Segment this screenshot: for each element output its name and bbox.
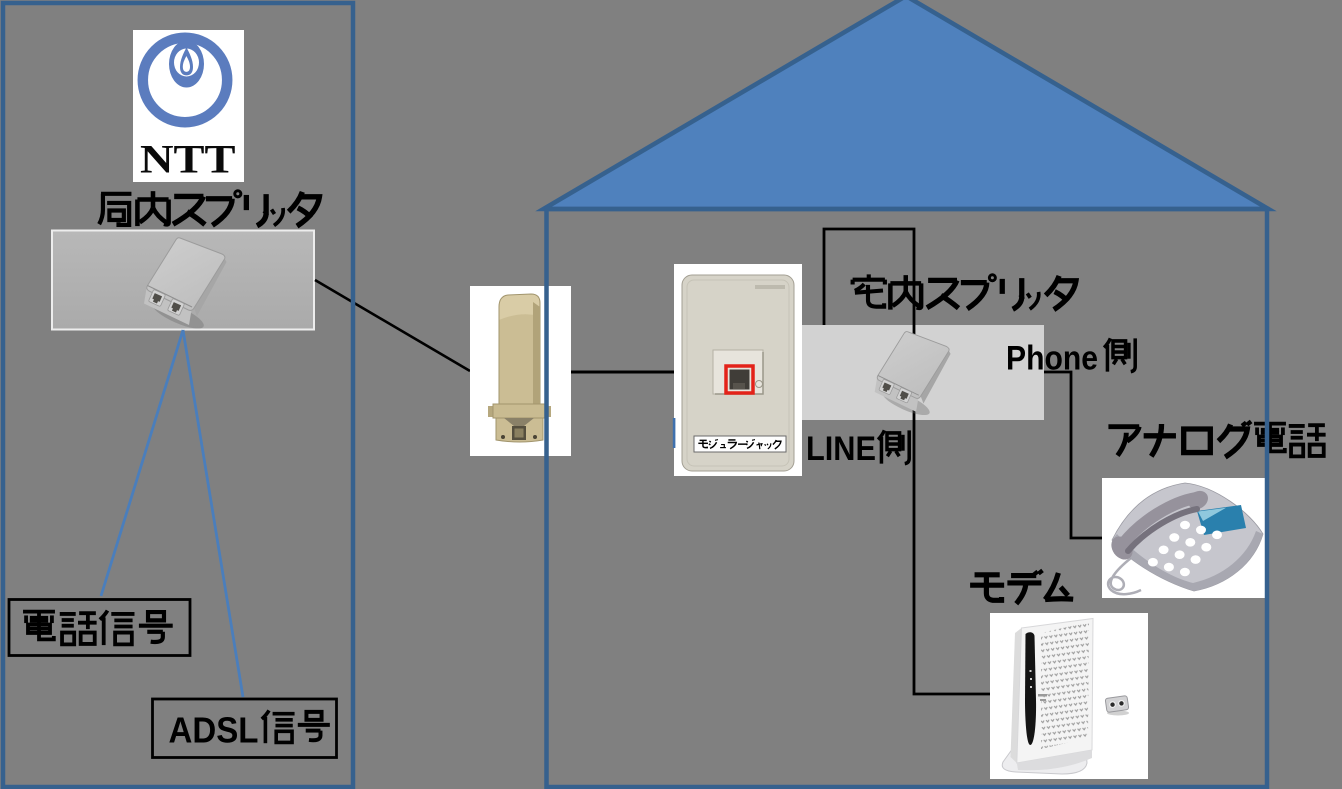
svg-text:ADSL: ADSL [169,710,259,751]
svg-text:NTT: NTT [140,137,236,182]
svg-text:LINE: LINE [806,430,876,468]
svg-text:Phone: Phone [1006,340,1098,378]
